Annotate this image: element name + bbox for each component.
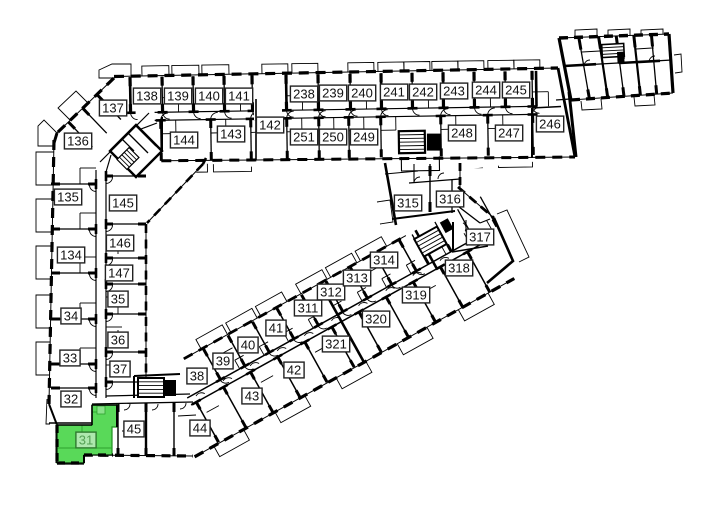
- svg-text:320: 320: [365, 312, 387, 327]
- svg-text:141: 141: [228, 89, 250, 104]
- svg-text:38: 38: [190, 369, 204, 384]
- svg-text:311: 311: [298, 301, 319, 316]
- svg-text:31: 31: [79, 433, 93, 448]
- svg-text:241: 241: [383, 85, 405, 100]
- svg-text:316: 316: [439, 192, 461, 207]
- svg-text:138: 138: [136, 89, 158, 104]
- svg-text:33: 33: [63, 351, 77, 366]
- svg-text:314: 314: [373, 253, 395, 268]
- svg-text:312: 312: [320, 285, 342, 300]
- svg-text:36: 36: [111, 333, 125, 348]
- svg-text:39: 39: [216, 354, 230, 369]
- svg-text:240: 240: [351, 86, 373, 101]
- svg-text:142: 142: [259, 118, 281, 133]
- svg-text:144: 144: [173, 133, 195, 148]
- svg-text:243: 243: [443, 84, 465, 99]
- svg-text:34: 34: [64, 309, 78, 324]
- svg-text:251: 251: [293, 130, 315, 145]
- svg-text:246: 246: [539, 117, 561, 132]
- svg-text:139: 139: [167, 89, 189, 104]
- svg-text:134: 134: [60, 248, 82, 263]
- svg-text:249: 249: [353, 130, 375, 145]
- svg-text:238: 238: [293, 87, 315, 102]
- svg-text:313: 313: [346, 271, 368, 286]
- svg-text:140: 140: [198, 89, 220, 104]
- svg-text:135: 135: [57, 190, 79, 205]
- svg-text:317: 317: [469, 230, 491, 245]
- svg-text:248: 248: [451, 126, 473, 141]
- svg-text:41: 41: [269, 321, 283, 336]
- svg-text:146: 146: [109, 236, 131, 251]
- svg-text:136: 136: [67, 134, 89, 149]
- svg-text:42: 42: [287, 363, 301, 378]
- svg-text:45: 45: [127, 422, 141, 437]
- svg-text:242: 242: [412, 85, 434, 100]
- svg-text:143: 143: [220, 127, 242, 142]
- svg-text:239: 239: [322, 86, 344, 101]
- svg-text:321: 321: [325, 337, 347, 352]
- svg-text:147: 147: [108, 266, 130, 281]
- svg-text:245: 245: [505, 83, 527, 98]
- svg-text:44: 44: [193, 421, 207, 436]
- svg-text:319: 319: [405, 288, 427, 303]
- svg-text:244: 244: [475, 83, 497, 98]
- svg-text:247: 247: [498, 126, 520, 141]
- svg-text:32: 32: [64, 392, 78, 407]
- svg-text:35: 35: [111, 292, 125, 307]
- svg-text:250: 250: [322, 130, 344, 145]
- svg-text:137: 137: [102, 101, 124, 116]
- svg-text:43: 43: [245, 389, 259, 404]
- svg-text:315: 315: [397, 196, 419, 211]
- svg-text:37: 37: [113, 362, 127, 377]
- svg-text:145: 145: [112, 196, 134, 211]
- svg-text:318: 318: [448, 261, 470, 276]
- svg-text:40: 40: [241, 338, 255, 353]
